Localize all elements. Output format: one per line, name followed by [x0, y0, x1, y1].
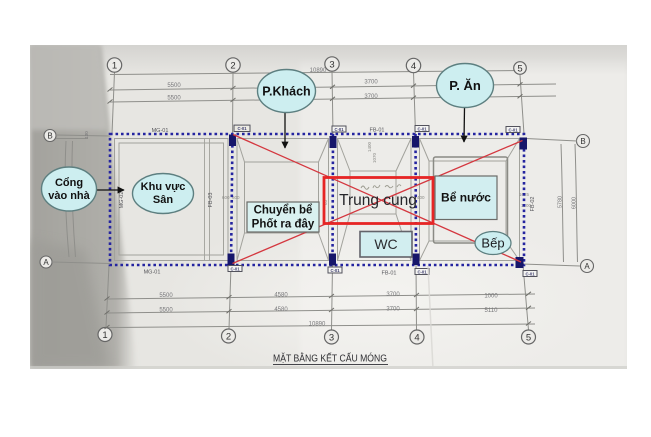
svg-text:5500: 5500: [167, 96, 181, 102]
svg-text:600: 600: [232, 195, 240, 200]
svg-text:Trung cung: Trung cung: [339, 192, 417, 209]
svg-text:C-01: C-01: [417, 126, 427, 131]
svg-text:vào nhà: vào nhà: [48, 190, 90, 202]
svg-text:FB-03: FB-03: [208, 193, 214, 208]
svg-text:5500: 5500: [167, 83, 181, 89]
svg-text:FB-01: FB-01: [382, 271, 397, 277]
svg-text:2: 2: [226, 331, 231, 342]
svg-text:1: 1: [102, 330, 107, 341]
svg-text:MG-02: MG-02: [119, 192, 125, 209]
svg-text:600: 600: [222, 195, 230, 200]
svg-text:Sân: Sân: [153, 194, 173, 206]
svg-text:130: 130: [84, 131, 89, 139]
svg-text:400: 400: [417, 195, 425, 200]
svg-text:3: 3: [329, 59, 334, 70]
svg-text:Cổng: Cổng: [55, 177, 83, 189]
svg-text:MG-01: MG-01: [144, 270, 161, 276]
svg-text:5780: 5780: [558, 196, 564, 208]
svg-text:C-01: C-01: [508, 127, 518, 132]
svg-text:4: 4: [411, 61, 416, 72]
svg-text:10890: 10890: [310, 68, 327, 74]
svg-text:C-01: C-01: [334, 127, 344, 132]
svg-text:1000: 1000: [484, 294, 498, 300]
svg-text:B: B: [580, 137, 585, 146]
svg-text:10890: 10890: [309, 322, 326, 328]
svg-text:Chuyển bể: Chuyển bể: [254, 205, 313, 217]
svg-text:FB-01: FB-01: [370, 128, 385, 134]
svg-text:WC: WC: [374, 236, 397, 252]
svg-text:C-01: C-01: [417, 269, 427, 274]
svg-text:3700: 3700: [386, 292, 400, 298]
svg-text:4580: 4580: [274, 293, 288, 299]
svg-text:P.Khách: P.Khách: [262, 85, 310, 99]
svg-text:Bếp: Bếp: [481, 236, 504, 251]
svg-text:Phốt ra đây: Phốt ra đây: [252, 219, 315, 231]
svg-text:5: 5: [517, 63, 522, 74]
svg-text:Bể nước: Bể nước: [441, 191, 491, 205]
svg-text:C-01: C-01: [230, 266, 240, 271]
svg-text:MẶT BẰNG KẾT CẤU MÓNG: MẶT BẰNG KẾT CẤU MÓNG: [273, 352, 387, 365]
svg-text:5500: 5500: [159, 293, 173, 299]
svg-text:Khu vực: Khu vực: [141, 181, 186, 193]
svg-text:A: A: [43, 258, 49, 267]
svg-text:3700: 3700: [364, 80, 378, 86]
svg-text:C-01: C-01: [237, 126, 247, 131]
svg-text:4580: 4580: [274, 307, 288, 313]
svg-text:3: 3: [329, 332, 334, 343]
svg-text:5: 5: [526, 332, 531, 343]
svg-text:5500: 5500: [159, 308, 173, 314]
svg-text:1400: 1400: [367, 141, 372, 152]
svg-text:B: B: [47, 132, 52, 141]
svg-text:4: 4: [414, 332, 419, 343]
svg-text:2: 2: [230, 60, 235, 71]
svg-text:C-01: C-01: [525, 271, 535, 276]
svg-text:1070: 1070: [372, 152, 377, 163]
svg-text:3700: 3700: [364, 94, 378, 100]
svg-text:1: 1: [112, 60, 117, 71]
svg-text:3700: 3700: [386, 307, 400, 313]
svg-text:P. Ăn: P. Ăn: [449, 78, 481, 93]
svg-text:A: A: [584, 262, 590, 271]
svg-text:FB-02: FB-02: [530, 197, 536, 212]
svg-text:5110: 5110: [485, 308, 499, 314]
svg-text:6000: 6000: [572, 197, 578, 209]
svg-text:C-01: C-01: [330, 268, 340, 273]
